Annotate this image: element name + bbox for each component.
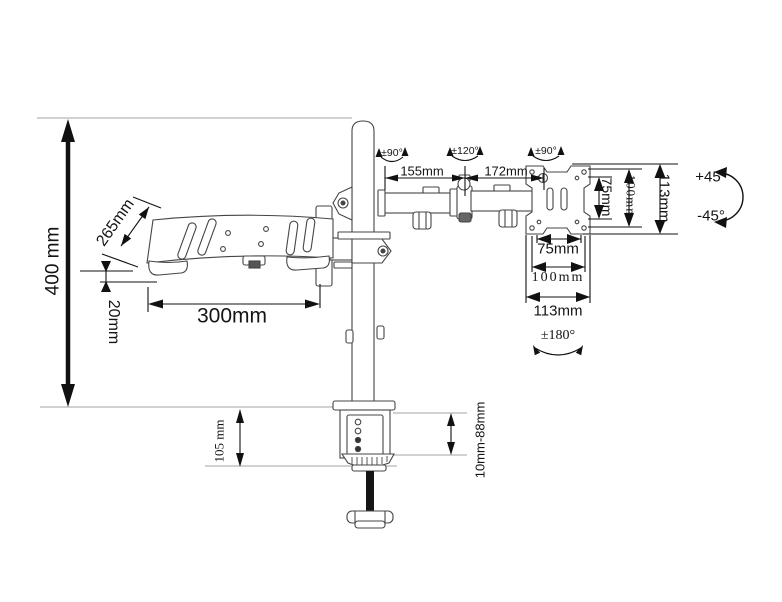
rot-label-mid: ±120° — [451, 146, 478, 157]
dimension-diagram: 400 mm 265mm 20mm 300mm 155mm 172mm ±90°… — [0, 0, 782, 602]
dim-label-105mm: 105 mm — [213, 420, 226, 463]
dim-label-172mm: 172mm — [484, 165, 527, 178]
dim-20mm — [80, 261, 157, 292]
dim-label-vesa-v113: 113mm — [657, 174, 672, 223]
pole-top-joint — [333, 187, 352, 220]
arm — [378, 175, 541, 229]
arm-tab-2 — [494, 185, 510, 191]
cable-clip-1 — [413, 212, 431, 229]
clamp-screw-rod — [366, 471, 374, 513]
dim-clamp-range — [447, 413, 455, 455]
dim-label-vesa-h75: 75mm — [537, 242, 579, 257]
dim-label-300mm: 300mm — [197, 306, 267, 327]
rot-label-plate: ±180° — [541, 329, 575, 343]
dim-label-vesa-v100: 100mm — [625, 175, 638, 220]
dim-label-vesa-h113: 113mm — [534, 304, 583, 319]
rot-label-head: ±90° — [535, 146, 557, 157]
vesa-slot-left — [547, 188, 553, 210]
arm-tab-1 — [423, 187, 439, 193]
elbow-bolt — [458, 178, 470, 190]
arm-segment-2 — [471, 191, 535, 211]
arm-segment-1 — [382, 193, 456, 213]
arc-rot-plate — [533, 345, 583, 355]
clamp-top-flange — [333, 401, 395, 410]
desk-clamp — [333, 401, 395, 528]
cable-clip-2 — [499, 210, 517, 227]
tilt-label-down: -45° — [697, 209, 725, 224]
rot-label-pole: ±90° — [381, 148, 403, 159]
dim-label-400mm: 400 mm — [44, 227, 63, 296]
tray-latch-tab — [249, 261, 260, 268]
dim-label-vesa-h100: 100mm — [532, 271, 585, 285]
tray-front-lip-right — [287, 256, 330, 270]
dim-label-155mm: 155mm — [400, 165, 443, 178]
clamp-handle — [347, 511, 393, 528]
dim-label-20mm: 20mm — [105, 300, 121, 344]
laptop-tray — [147, 206, 356, 286]
dim-105mm — [236, 409, 244, 467]
tilt-label-up: +45° — [695, 170, 726, 185]
dim-label-vesa-v75: 75mm — [600, 178, 614, 217]
dim-label-clamp-range: 10mm-88mm — [474, 402, 487, 479]
vesa-slot-right — [561, 188, 567, 210]
tray-front-lip-left — [149, 261, 188, 275]
pole-clip-left — [346, 330, 353, 343]
pole-clip-right — [377, 326, 384, 339]
elbow-lower-cap — [459, 213, 471, 222]
